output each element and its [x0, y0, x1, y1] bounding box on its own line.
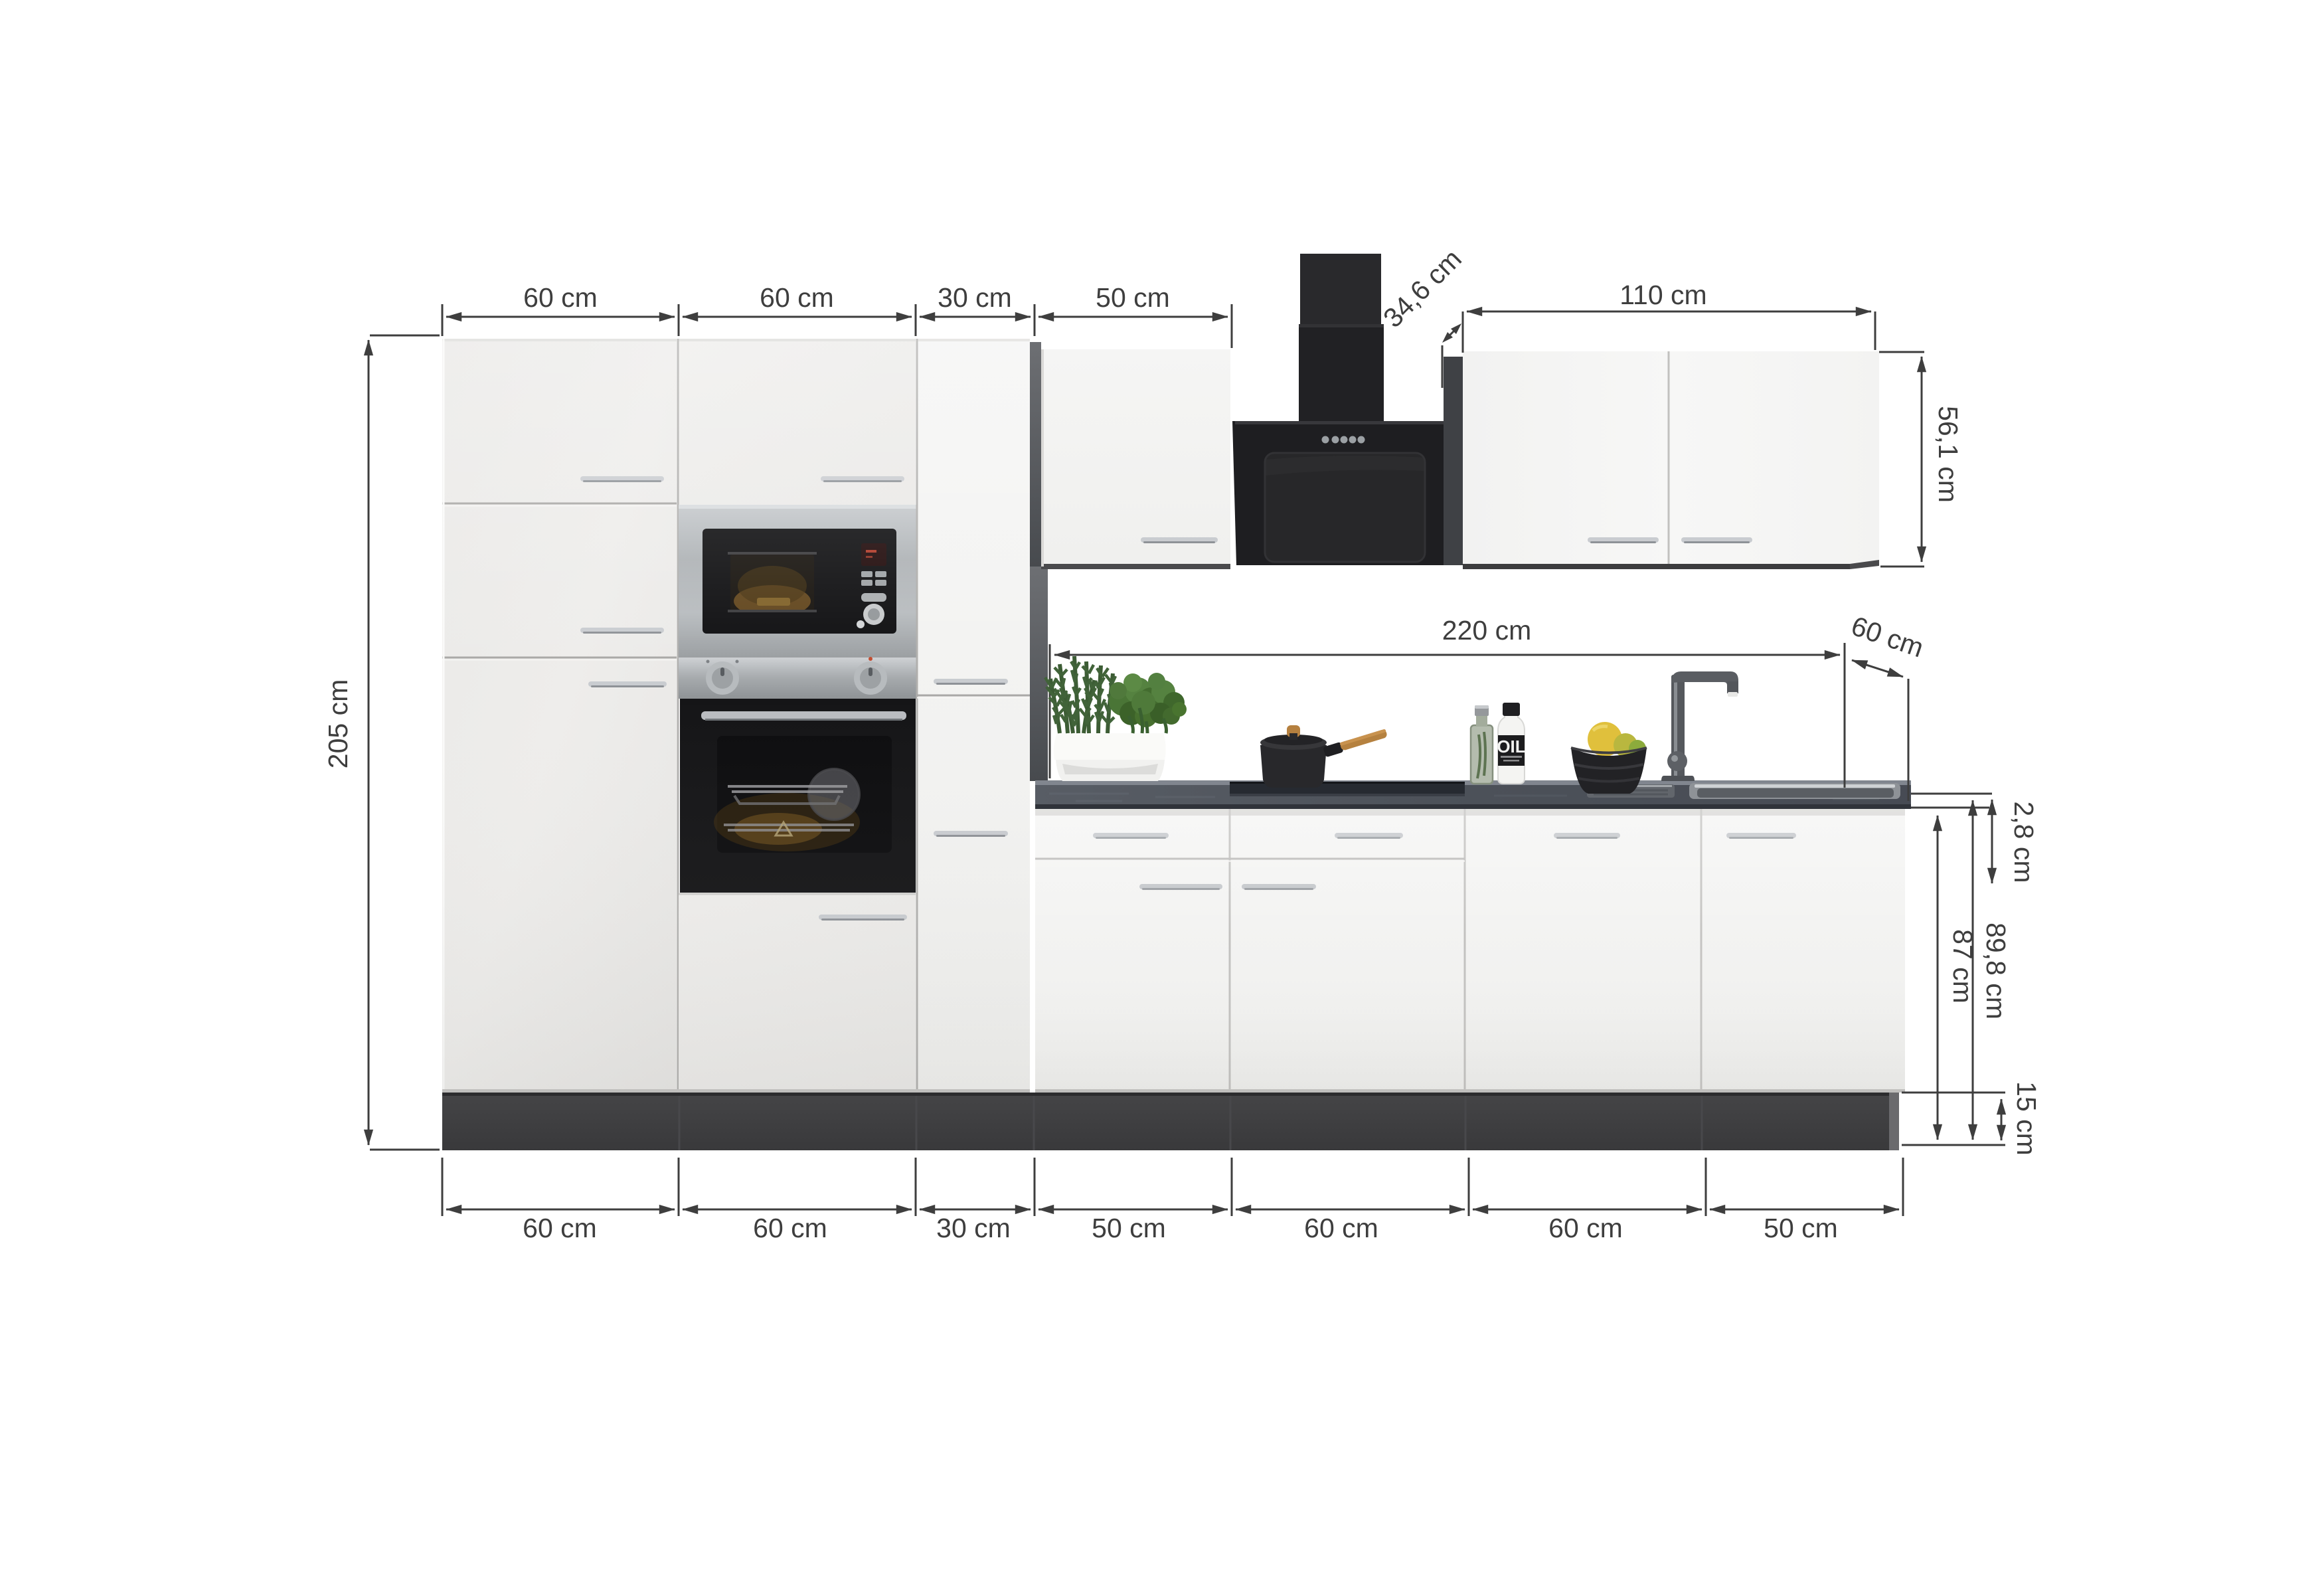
svg-text:110 cm: 110 cm — [1619, 280, 1706, 310]
svg-text:15 cm: 15 cm — [2011, 1081, 2042, 1156]
svg-text:50 cm: 50 cm — [1096, 282, 1170, 313]
svg-text:60 cm: 60 cm — [1304, 1213, 1378, 1243]
svg-text:60 cm: 60 cm — [523, 1213, 597, 1243]
svg-text:87 cm: 87 cm — [1948, 929, 1978, 1004]
svg-text:2,8 cm: 2,8 cm — [2009, 801, 2039, 883]
svg-text:60 cm: 60 cm — [523, 282, 598, 313]
svg-text:30 cm: 30 cm — [938, 282, 1012, 313]
svg-text:50 cm: 50 cm — [1764, 1213, 1838, 1243]
svg-text:50 cm: 50 cm — [1092, 1213, 1166, 1243]
svg-text:89,8 cm: 89,8 cm — [1981, 923, 2011, 1019]
svg-text:60 cm: 60 cm — [760, 282, 834, 313]
svg-text:205 cm: 205 cm — [323, 679, 353, 768]
svg-text:56,1 cm: 56,1 cm — [1933, 406, 1963, 503]
svg-text:30 cm: 30 cm — [936, 1213, 1011, 1243]
svg-text:220 cm: 220 cm — [1442, 615, 1531, 646]
svg-text:60 cm: 60 cm — [1548, 1213, 1623, 1243]
svg-text:OIL: OIL — [1497, 737, 1525, 756]
svg-text:60 cm: 60 cm — [753, 1213, 827, 1243]
